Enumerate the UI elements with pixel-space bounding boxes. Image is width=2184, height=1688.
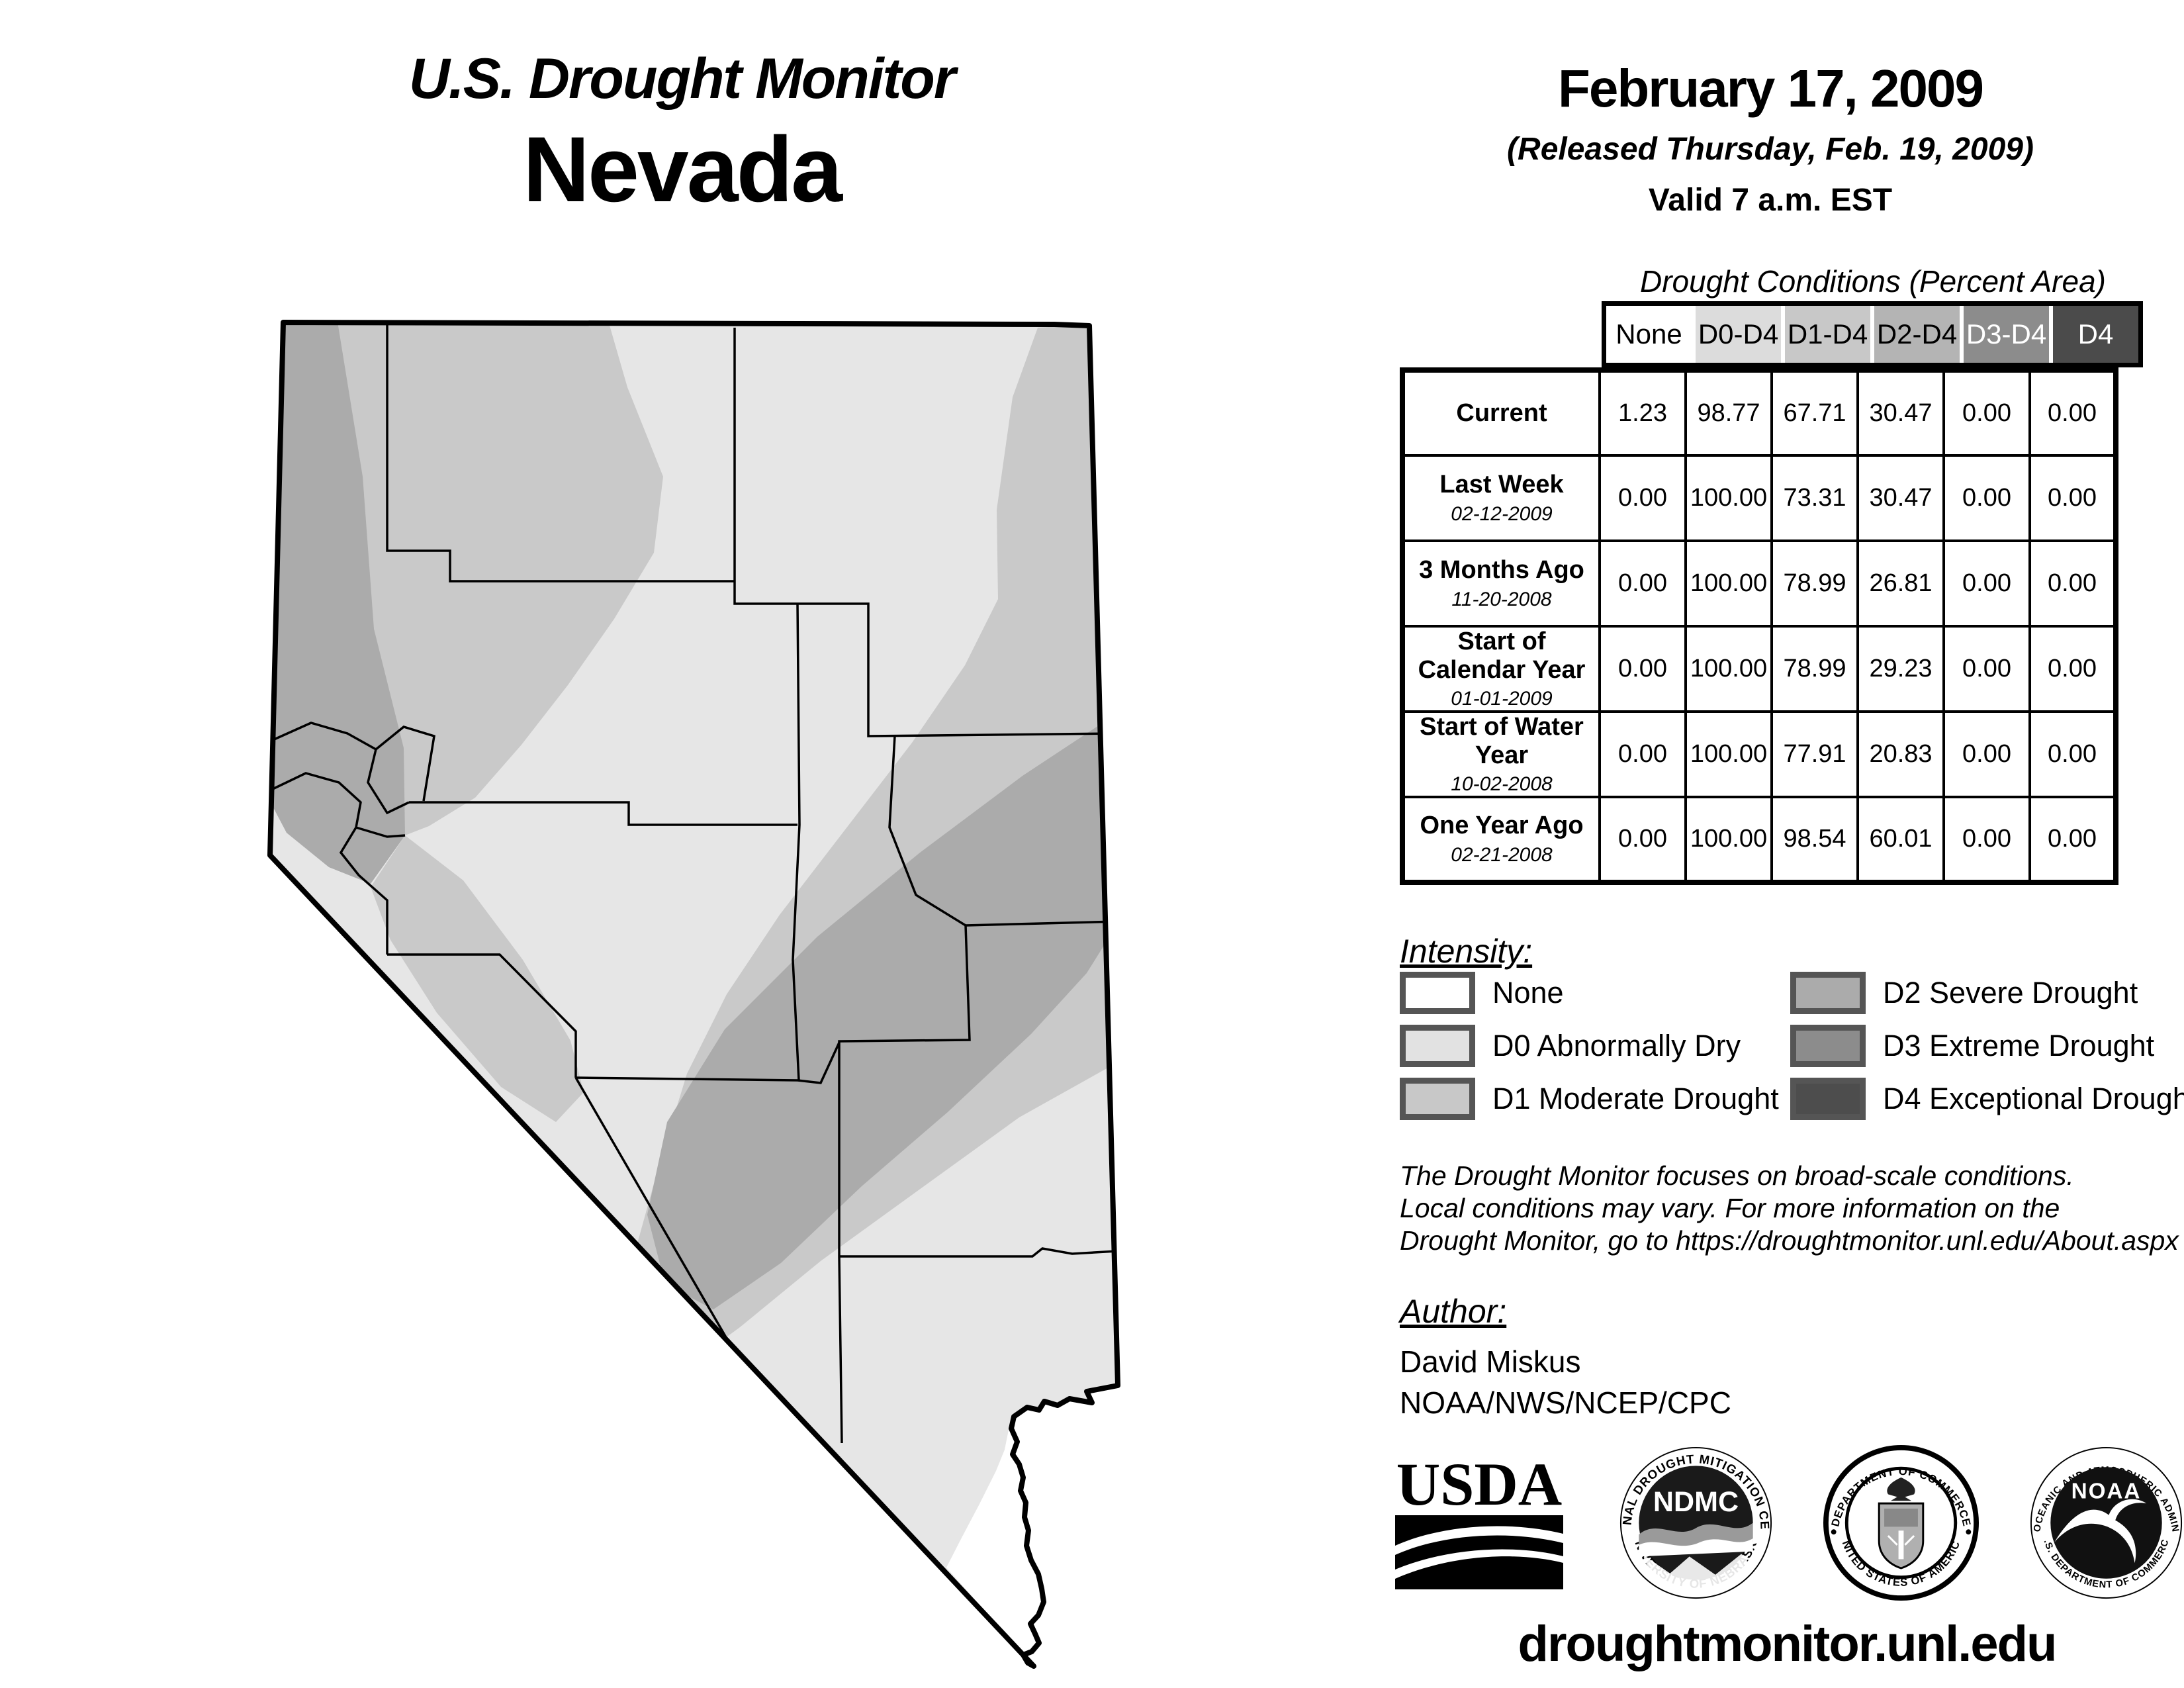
row-label: Start of Water Year — [1409, 713, 1594, 769]
table-title: Drought Conditions (Percent Area) — [1602, 263, 2144, 299]
date-block: February 17, 2009 (Released Thursday, Fe… — [1396, 58, 2144, 218]
legend-label: D1 Moderate Drought — [1492, 1082, 1779, 1116]
row-date: 11-20-2008 — [1409, 588, 1594, 611]
legend-item-d1: D1 Moderate Drought — [1400, 1078, 1779, 1120]
cell-value: 0.00 — [2030, 455, 2116, 541]
cell-value: 30.47 — [1858, 455, 1944, 541]
cell-value: 77.91 — [1772, 712, 1858, 797]
col-header-d2d4: D2-D4 — [1870, 306, 1960, 363]
legend-label: D4 Exceptional Drought — [1883, 1082, 2184, 1116]
cell-value: 1.23 — [1600, 370, 1686, 455]
author-name: David Miskus — [1400, 1344, 1581, 1380]
cell-value: 0.00 — [2030, 797, 2116, 882]
legend-label: None — [1492, 976, 1564, 1010]
legend-swatch-d4 — [1790, 1078, 1866, 1120]
legend-swatch-d3 — [1790, 1025, 1866, 1067]
col-header-none: None — [1606, 306, 1692, 363]
cell-value: 0.00 — [2030, 541, 2116, 626]
col-header-d1d4: D1-D4 — [1781, 306, 1870, 363]
cell-value: 100.00 — [1686, 626, 1772, 712]
disclaimer: The Drought Monitor focuses on broad-sca… — [1400, 1160, 2179, 1258]
usda-logo: USDA — [1390, 1446, 1569, 1599]
commerce-seal: DEPARTMENT OF COMMERCE UNITED STATES OF … — [1823, 1445, 1979, 1601]
disclaimer-line: Drought Monitor, go to https://droughtmo… — [1400, 1225, 2179, 1257]
noaa-logo: NATIONAL OCEANIC AND ATMOSPHERIC ADMINIS… — [2028, 1445, 2184, 1601]
cell-value: 0.00 — [1944, 370, 2030, 455]
table-row: Current 1.23 98.77 67.71 30.47 0.00 0.00 — [1402, 370, 2116, 455]
cell-value: 29.23 — [1858, 626, 1944, 712]
legend-item-none: None — [1400, 972, 1564, 1014]
disclaimer-line: Local conditions may vary. For more info… — [1400, 1192, 2179, 1225]
agency-logos: USDA NATIONAL DROUGHT MITIGATION CENTER … — [1390, 1436, 2184, 1609]
state-name: Nevada — [199, 116, 1165, 223]
col-header-d0d4: D0-D4 — [1692, 306, 1781, 363]
cell-value: 0.00 — [1600, 541, 1686, 626]
drought-monitor-report: U.S. Drought Monitor Nevada — [0, 0, 2184, 1688]
cell-value: 0.00 — [1944, 797, 2030, 882]
site-url: droughtmonitor.unl.edu — [1390, 1615, 2184, 1673]
report-title-block: U.S. Drought Monitor Nevada — [199, 46, 1165, 223]
cell-value: 0.00 — [1600, 797, 1686, 882]
table-header-row: None D0-D4 D1-D4 D2-D4 D3-D4 D4 — [1602, 301, 2143, 367]
legend-swatch-d1 — [1400, 1078, 1475, 1120]
legend-item-d3: D3 Extreme Drought — [1790, 1025, 2154, 1067]
cell-value: 30.47 — [1858, 370, 1944, 455]
cell-value: 78.99 — [1772, 541, 1858, 626]
cell-value: 0.00 — [1600, 626, 1686, 712]
table-row: 3 Months Ago11-20-2008 0.00 100.00 78.99… — [1402, 541, 2116, 626]
intensity-heading: Intensity: — [1400, 932, 1532, 970]
table-row: Start of Calendar Year01-01-2009 0.00 10… — [1402, 626, 2116, 712]
row-date: 02-21-2008 — [1409, 844, 1594, 867]
cell-value: 26.81 — [1858, 541, 1944, 626]
legend-swatch-d0 — [1400, 1025, 1475, 1067]
cell-value: 0.00 — [1944, 626, 2030, 712]
row-label: One Year Ago — [1409, 812, 1594, 840]
cell-value: 0.00 — [1600, 455, 1686, 541]
cell-value: 0.00 — [1944, 455, 2030, 541]
cell-value: 67.71 — [1772, 370, 1858, 455]
nevada-drought-map — [245, 281, 1132, 1678]
row-date: 01-01-2009 — [1409, 688, 1594, 710]
table-row: Start of Water Year10-02-2008 0.00 100.0… — [1402, 712, 2116, 797]
legend-label: D0 Abnormally Dry — [1492, 1029, 1741, 1063]
row-label: Current — [1409, 399, 1594, 428]
valid-time: Valid 7 a.m. EST — [1396, 182, 2144, 218]
drought-conditions-table: Current 1.23 98.77 67.71 30.47 0.00 0.00… — [1400, 367, 2118, 885]
release-date: (Released Thursday, Feb. 19, 2009) — [1396, 131, 2144, 167]
row-label: 3 Months Ago — [1409, 556, 1594, 585]
legend-item-d4: D4 Exceptional Drought — [1790, 1078, 2184, 1120]
cell-value: 60.01 — [1858, 797, 1944, 882]
cell-value: 0.00 — [2030, 626, 2116, 712]
map-date: February 17, 2009 — [1396, 58, 2144, 119]
author-heading: Author: — [1400, 1292, 1506, 1331]
cell-value: 100.00 — [1686, 797, 1772, 882]
row-date: 02-12-2009 — [1409, 503, 1594, 526]
cell-value: 100.00 — [1686, 541, 1772, 626]
table-row: Last Week02-12-2009 0.00 100.00 73.31 30… — [1402, 455, 2116, 541]
legend-item-d2: D2 Severe Drought — [1790, 972, 2138, 1014]
legend-label: D2 Severe Drought — [1883, 976, 2138, 1010]
cell-value: 0.00 — [2030, 370, 2116, 455]
col-header-d3d4: D3-D4 — [1960, 306, 2049, 363]
row-label: Last Week — [1409, 471, 1594, 499]
cell-value: 20.83 — [1858, 712, 1944, 797]
cell-value: 78.99 — [1772, 626, 1858, 712]
noaa-center-text: NOAA — [2071, 1479, 2142, 1503]
ndmc-center-text: NDMC — [1653, 1485, 1739, 1517]
cell-value: 0.00 — [1600, 712, 1686, 797]
cell-value: 0.00 — [1944, 712, 2030, 797]
cell-value: 100.00 — [1686, 712, 1772, 797]
legend-item-d0: D0 Abnormally Dry — [1400, 1025, 1741, 1067]
disclaimer-line: The Drought Monitor focuses on broad-sca… — [1400, 1160, 2179, 1192]
legend-label: D3 Extreme Drought — [1883, 1029, 2154, 1063]
legend-swatch-none — [1400, 972, 1475, 1014]
row-date: 10-02-2008 — [1409, 773, 1594, 796]
table-row: One Year Ago02-21-2008 0.00 100.00 98.54… — [1402, 797, 2116, 882]
col-header-d4: D4 — [2049, 306, 2138, 363]
cell-value: 73.31 — [1772, 455, 1858, 541]
cell-value: 0.00 — [1944, 541, 2030, 626]
author-org: NOAA/NWS/NCEP/CPC — [1400, 1385, 1731, 1421]
legend-swatch-d2 — [1790, 972, 1866, 1014]
cell-value: 100.00 — [1686, 455, 1772, 541]
ndmc-logo: NATIONAL DROUGHT MITIGATION CENTER UNIVE… — [1618, 1445, 1774, 1601]
usda-logo-text: USDA — [1396, 1450, 1562, 1518]
cell-value: 0.00 — [2030, 712, 2116, 797]
row-label: Start of Calendar Year — [1409, 628, 1594, 684]
cell-value: 98.54 — [1772, 797, 1858, 882]
report-title: U.S. Drought Monitor — [199, 46, 1165, 112]
cell-value: 98.77 — [1686, 370, 1772, 455]
